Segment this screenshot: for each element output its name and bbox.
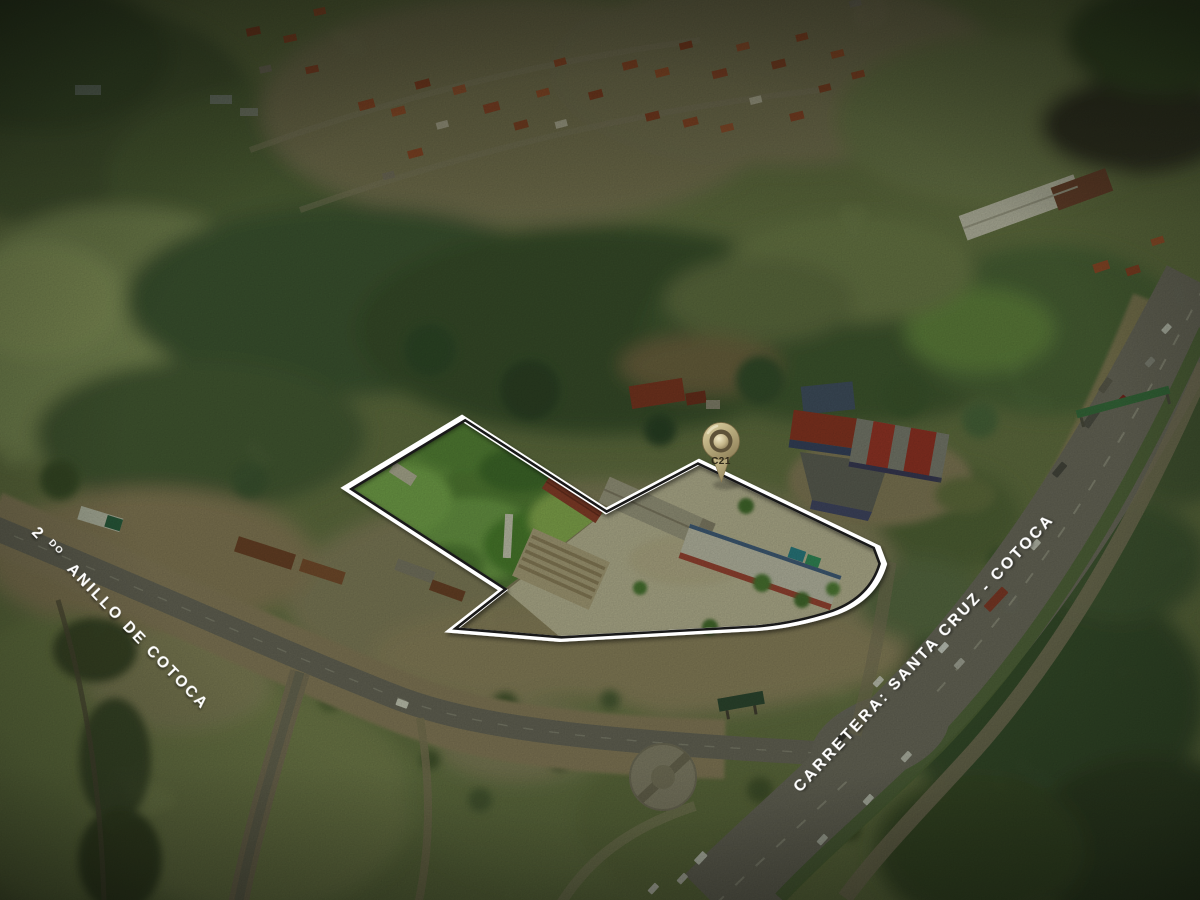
vignette — [0, 0, 1200, 900]
aerial-property-photo: C21 2 DO ANILLO DE COTOCA CARRETERA: SAN… — [0, 0, 1200, 900]
pin-shadow — [713, 481, 739, 490]
pin-sphere — [714, 434, 729, 449]
aerial-scene-svg: C21 2 DO ANILLO DE COTOCA CARRETERA: SAN… — [0, 0, 1200, 900]
pin-label: C21 — [711, 456, 731, 467]
